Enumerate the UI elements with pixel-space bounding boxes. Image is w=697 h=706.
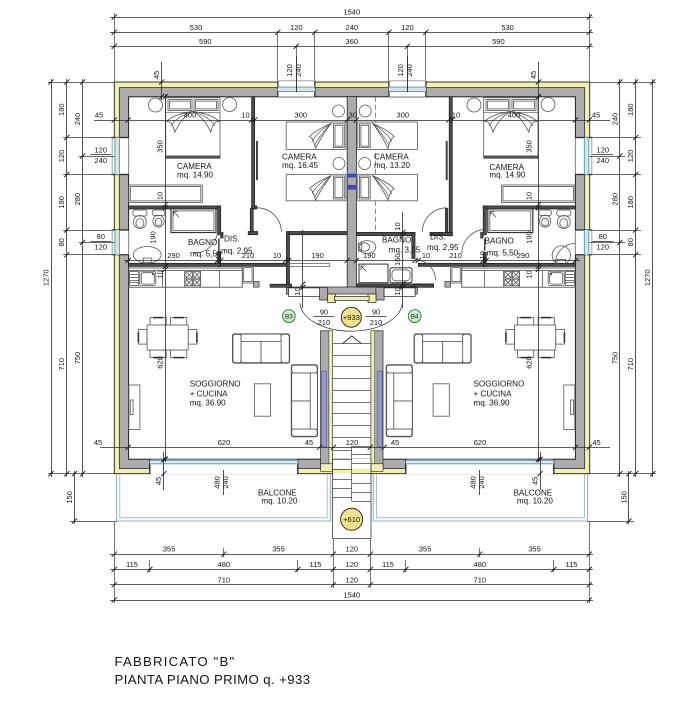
svg-text:120: 120 bbox=[396, 64, 405, 77]
svg-text:FABBRICATO "B": FABBRICATO "B" bbox=[115, 654, 236, 669]
svg-text:355: 355 bbox=[272, 545, 285, 554]
svg-text:45: 45 bbox=[391, 438, 399, 447]
svg-text:190: 190 bbox=[525, 231, 534, 244]
svg-text:710: 710 bbox=[626, 358, 635, 371]
svg-text:710: 710 bbox=[474, 575, 487, 584]
svg-text:1270: 1270 bbox=[41, 269, 50, 286]
svg-text:210: 210 bbox=[370, 318, 383, 327]
svg-text:355: 355 bbox=[528, 545, 541, 554]
svg-text:1270: 1270 bbox=[643, 269, 652, 286]
svg-text:10: 10 bbox=[293, 287, 302, 295]
svg-text:120: 120 bbox=[346, 560, 359, 569]
svg-text:45: 45 bbox=[154, 477, 163, 485]
svg-text:180: 180 bbox=[626, 103, 635, 116]
svg-text:620: 620 bbox=[218, 438, 231, 447]
svg-text:mq. 10.20: mq. 10.20 bbox=[261, 496, 297, 505]
svg-text:10: 10 bbox=[273, 251, 281, 260]
svg-text:355: 355 bbox=[163, 545, 176, 554]
svg-text:120: 120 bbox=[597, 146, 610, 155]
svg-text:120: 120 bbox=[626, 150, 635, 163]
svg-text:+ CUCINA: + CUCINA bbox=[190, 390, 229, 399]
svg-text:80: 80 bbox=[97, 232, 105, 241]
svg-text:+933: +933 bbox=[343, 313, 360, 322]
svg-text:590: 590 bbox=[492, 37, 505, 46]
svg-text:+610: +610 bbox=[343, 515, 360, 524]
svg-text:480: 480 bbox=[474, 560, 487, 569]
svg-text:280: 280 bbox=[610, 193, 619, 206]
svg-text:10: 10 bbox=[241, 111, 249, 120]
svg-text:mq. 2,95: mq. 2,95 bbox=[221, 247, 253, 256]
svg-text:480: 480 bbox=[212, 476, 221, 489]
svg-text:120: 120 bbox=[346, 545, 359, 554]
svg-text:10: 10 bbox=[422, 251, 430, 260]
svg-text:180: 180 bbox=[57, 196, 66, 209]
svg-text:355: 355 bbox=[419, 545, 432, 554]
svg-text:240: 240 bbox=[610, 113, 619, 126]
svg-text:45: 45 bbox=[95, 111, 103, 120]
svg-text:mq. 36.90: mq. 36.90 bbox=[190, 399, 226, 408]
svg-text:240: 240 bbox=[346, 23, 359, 32]
svg-text:120: 120 bbox=[346, 575, 359, 584]
svg-text:350: 350 bbox=[156, 140, 165, 153]
svg-text:750: 750 bbox=[610, 352, 619, 365]
svg-text:620: 620 bbox=[474, 438, 487, 447]
svg-text:45: 45 bbox=[530, 477, 539, 485]
svg-text:590: 590 bbox=[199, 37, 212, 46]
svg-text:530: 530 bbox=[190, 23, 203, 32]
svg-text:B4: B4 bbox=[411, 314, 419, 321]
svg-text:10: 10 bbox=[525, 270, 534, 278]
svg-text:1540: 1540 bbox=[343, 591, 360, 600]
svg-text:10: 10 bbox=[156, 270, 165, 278]
svg-text:mq. 13.20: mq. 13.20 bbox=[374, 161, 410, 170]
svg-text:120: 120 bbox=[57, 150, 66, 163]
svg-text:120: 120 bbox=[401, 23, 414, 32]
svg-text:45: 45 bbox=[94, 438, 102, 447]
svg-text:mq. 14.90: mq. 14.90 bbox=[177, 170, 213, 179]
svg-text:45: 45 bbox=[592, 438, 600, 447]
svg-text:mq. 5,50: mq. 5,50 bbox=[190, 250, 222, 259]
svg-text:480: 480 bbox=[468, 476, 477, 489]
svg-text:180: 180 bbox=[57, 103, 66, 116]
svg-text:240: 240 bbox=[597, 156, 610, 165]
svg-text:45: 45 bbox=[592, 111, 600, 120]
svg-text:BAGNO: BAGNO bbox=[188, 238, 217, 247]
svg-text:DIS.: DIS. bbox=[224, 235, 240, 244]
svg-text:45: 45 bbox=[152, 71, 161, 79]
svg-text:B3: B3 bbox=[285, 314, 293, 321]
svg-text:45: 45 bbox=[529, 71, 538, 79]
svg-text:120: 120 bbox=[346, 438, 359, 447]
svg-text:mq. 2,95: mq. 2,95 bbox=[427, 243, 459, 252]
svg-text:120: 120 bbox=[95, 242, 108, 251]
svg-text:45: 45 bbox=[305, 438, 313, 447]
svg-text:10: 10 bbox=[156, 192, 165, 200]
svg-text:240: 240 bbox=[405, 64, 414, 77]
svg-text:150: 150 bbox=[619, 491, 628, 504]
svg-text:SOGGIORNO: SOGGIORNO bbox=[190, 379, 241, 388]
svg-text:190: 190 bbox=[311, 251, 324, 260]
svg-text:120: 120 bbox=[290, 23, 303, 32]
svg-text:+ CUCINA: + CUCINA bbox=[474, 390, 513, 399]
svg-text:400: 400 bbox=[184, 111, 197, 120]
svg-text:290: 290 bbox=[517, 251, 530, 260]
svg-text:mq. 10.20: mq. 10.20 bbox=[517, 496, 553, 505]
svg-text:10: 10 bbox=[393, 287, 402, 295]
svg-text:180: 180 bbox=[626, 196, 635, 209]
svg-text:150: 150 bbox=[65, 491, 74, 504]
svg-text:mq. 3,05: mq. 3,05 bbox=[389, 246, 421, 255]
svg-text:120: 120 bbox=[95, 146, 108, 155]
svg-text:90: 90 bbox=[372, 307, 380, 316]
svg-text:240: 240 bbox=[294, 64, 303, 77]
svg-text:240: 240 bbox=[221, 476, 230, 489]
svg-text:300: 300 bbox=[397, 111, 410, 120]
svg-text:mq. 14.90: mq. 14.90 bbox=[489, 171, 525, 180]
svg-text:240: 240 bbox=[73, 113, 82, 126]
svg-text:mq. 36.90: mq. 36.90 bbox=[474, 399, 510, 408]
svg-text:90: 90 bbox=[320, 307, 328, 316]
svg-text:350: 350 bbox=[525, 140, 534, 153]
svg-text:10: 10 bbox=[452, 111, 460, 120]
svg-text:290: 290 bbox=[167, 251, 180, 260]
svg-text:300: 300 bbox=[295, 111, 308, 120]
svg-text:PIANTA PIANO PRIMO q. +933: PIANTA PIANO PRIMO q. +933 bbox=[115, 672, 311, 687]
svg-text:80: 80 bbox=[599, 232, 607, 241]
svg-text:620: 620 bbox=[525, 356, 534, 369]
svg-text:115: 115 bbox=[382, 560, 394, 569]
svg-text:710: 710 bbox=[218, 575, 231, 584]
svg-text:190: 190 bbox=[149, 231, 158, 244]
svg-text:400: 400 bbox=[508, 111, 521, 120]
svg-text:115: 115 bbox=[310, 560, 322, 569]
svg-text:750: 750 bbox=[73, 352, 82, 365]
svg-text:115: 115 bbox=[126, 560, 138, 569]
svg-text:80: 80 bbox=[626, 238, 635, 246]
svg-text:115: 115 bbox=[566, 560, 578, 569]
svg-text:mq. 16.45: mq. 16.45 bbox=[282, 161, 318, 170]
svg-text:210: 210 bbox=[318, 318, 331, 327]
svg-text:BAGNO: BAGNO bbox=[485, 237, 514, 246]
svg-text:240: 240 bbox=[95, 156, 108, 165]
svg-text:30: 30 bbox=[349, 111, 357, 120]
svg-text:480: 480 bbox=[218, 560, 231, 569]
svg-text:360: 360 bbox=[346, 37, 359, 46]
svg-text:BAGNO: BAGNO bbox=[382, 235, 411, 244]
svg-text:80: 80 bbox=[57, 238, 66, 246]
svg-text:160: 160 bbox=[393, 253, 402, 266]
svg-text:10: 10 bbox=[393, 222, 402, 230]
svg-text:mq. 5,50: mq. 5,50 bbox=[487, 249, 519, 258]
svg-text:190: 190 bbox=[363, 251, 376, 260]
svg-text:710: 710 bbox=[57, 358, 66, 371]
svg-text:280: 280 bbox=[73, 193, 82, 206]
svg-text:1540: 1540 bbox=[343, 8, 360, 17]
svg-text:240: 240 bbox=[477, 476, 486, 489]
svg-text:120: 120 bbox=[285, 64, 294, 77]
svg-text:DIS.: DIS. bbox=[430, 233, 446, 242]
svg-text:SOGGIORNO: SOGGIORNO bbox=[474, 379, 525, 388]
svg-text:620: 620 bbox=[156, 356, 165, 369]
svg-text:120: 120 bbox=[597, 242, 610, 251]
svg-text:10: 10 bbox=[525, 192, 534, 200]
svg-text:530: 530 bbox=[501, 23, 514, 32]
svg-text:210: 210 bbox=[449, 251, 462, 260]
